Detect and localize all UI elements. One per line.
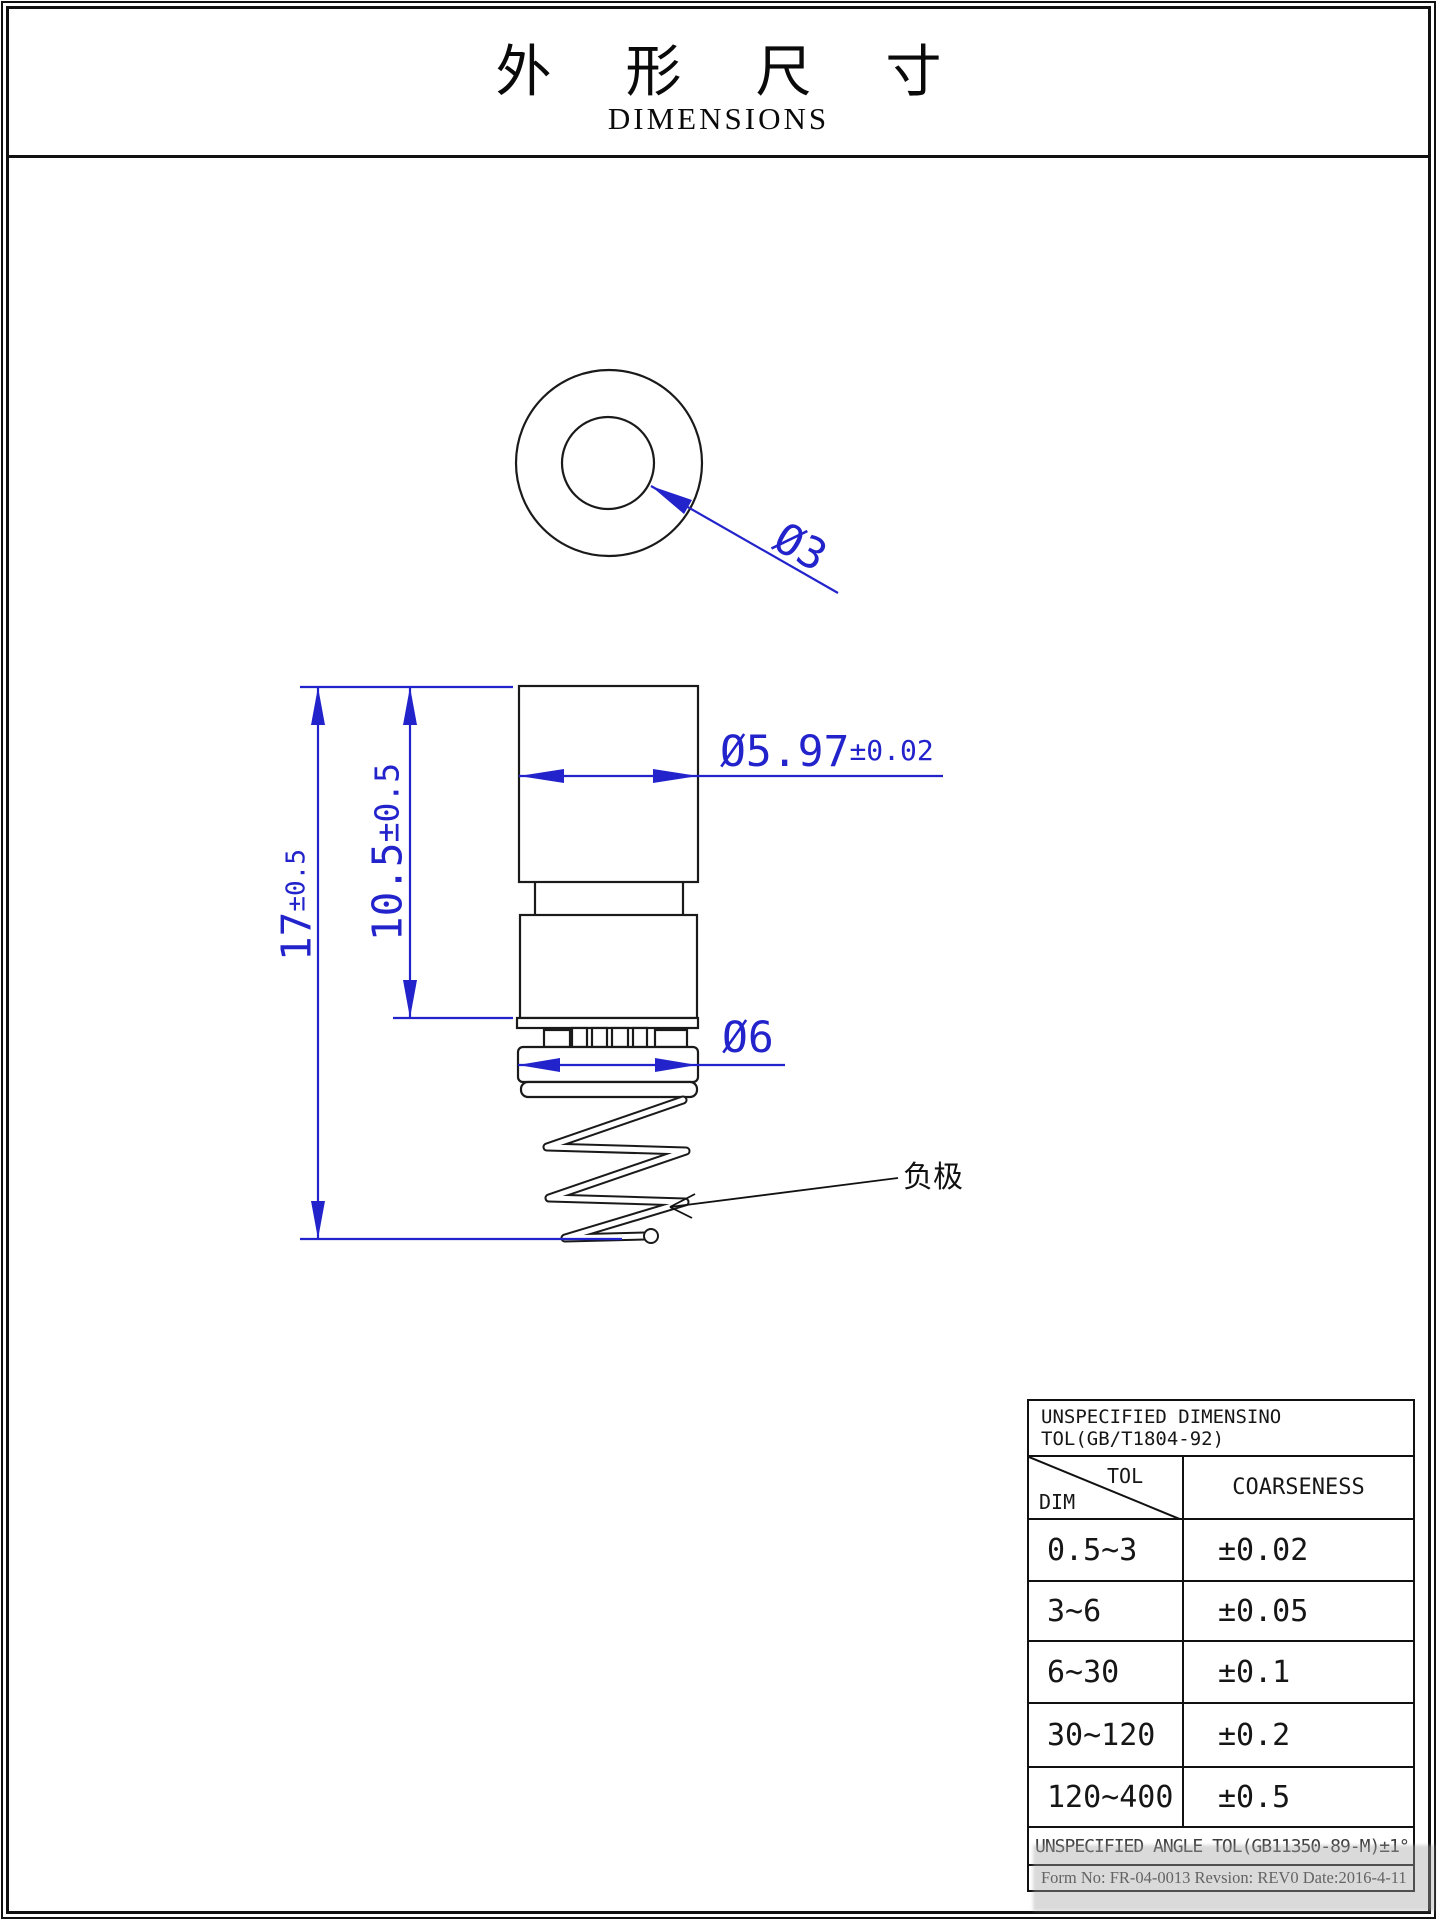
pin-right — [655, 1030, 687, 1047]
tolerance-cell: ±0.2 — [1184, 1704, 1413, 1766]
tolerance-table-header: TOL DIM COARSENESS — [1029, 1455, 1413, 1518]
table-column-divider — [1182, 1455, 1184, 1826]
header-dim-label: DIM — [1039, 1490, 1075, 1514]
table-row: 120~400 ±0.5 — [1029, 1766, 1413, 1826]
pin-left — [544, 1030, 570, 1047]
pin-comb-1 — [572, 1028, 587, 1047]
dim-total-height-value: 17 — [273, 912, 321, 961]
dim-body-height-tolerance: ±0.5 — [368, 763, 407, 842]
drawing-sheet: 外 形 尺 寸 DIMENSIONS — [0, 0, 1437, 1920]
header-coarseness-label: COARSENESS — [1184, 1457, 1413, 1518]
tolerance-table: UNSPECIFIED DIMENSINO TOL(GB/T1804-92) T… — [1027, 1399, 1415, 1892]
tolerance-cell: ±0.02 — [1184, 1520, 1413, 1580]
dim-body-diameter: Ø5.97±0.02 — [720, 731, 934, 774]
dim-body-diameter-value: Ø5.97 — [720, 727, 849, 777]
side-view — [517, 686, 698, 1097]
dim-range-cell: 6~30 — [1029, 1642, 1182, 1702]
dim-range-cell: 3~6 — [1029, 1582, 1182, 1640]
table-row: 3~6 ±0.05 — [1029, 1580, 1413, 1640]
diameter3-arrowhead — [651, 486, 692, 514]
pin-comb-2 — [592, 1028, 607, 1047]
pin-comb-3 — [612, 1028, 628, 1047]
angle-tolerance-note: UNSPECIFIED ANGLE TOL(GB11350-89-M)±1° — [1029, 1826, 1413, 1864]
tolerance-cell: ±0.5 — [1184, 1768, 1413, 1826]
negative-terminal-label: 负极 — [903, 1152, 963, 1196]
tolerance-cell: ±0.1 — [1184, 1642, 1413, 1702]
dim-body-height: 10.5±0.5 — [368, 763, 409, 941]
top-view — [516, 370, 702, 556]
table-row: 0.5~3 ±0.02 — [1029, 1518, 1413, 1580]
base-plate — [517, 1018, 698, 1028]
spring-wire-end — [644, 1229, 658, 1243]
dim-total-height-tolerance: ±0.5 — [282, 849, 312, 912]
dim-range-cell: 120~400 — [1029, 1768, 1182, 1826]
inner-circle — [562, 417, 654, 509]
dim-total-height: 17±0.5 — [277, 849, 318, 961]
header-tol-label: TOL — [1107, 1464, 1143, 1488]
tolerance-table-title: UNSPECIFIED DIMENSINO TOL(GB/T1804-92) — [1029, 1401, 1413, 1455]
lower-body — [520, 915, 697, 1018]
spring — [547, 1100, 686, 1243]
dim-flange-diameter: Ø6 — [722, 1017, 774, 1060]
form-info: Form No: FR-04-0013 Revsion: REV0 Date:2… — [1029, 1864, 1413, 1890]
dim-body-diameter-tolerance: ±0.02 — [849, 734, 933, 767]
spring-top-coil — [521, 1082, 697, 1097]
pin-comb-4 — [633, 1028, 647, 1047]
dim-body-height-value: 10.5 — [364, 842, 412, 941]
dim-range-cell: 30~120 — [1029, 1704, 1182, 1766]
outer-circle — [516, 370, 702, 556]
upper-body — [519, 686, 698, 882]
table-row: 6~30 ±0.1 — [1029, 1640, 1413, 1702]
dim-flange-diameter-value: Ø6 — [722, 1013, 774, 1063]
negative-terminal-leader — [670, 1178, 898, 1218]
dim-range-cell: 0.5~3 — [1029, 1520, 1182, 1580]
table-row: 30~120 ±0.2 — [1029, 1702, 1413, 1766]
tolerance-cell: ±0.05 — [1184, 1582, 1413, 1640]
